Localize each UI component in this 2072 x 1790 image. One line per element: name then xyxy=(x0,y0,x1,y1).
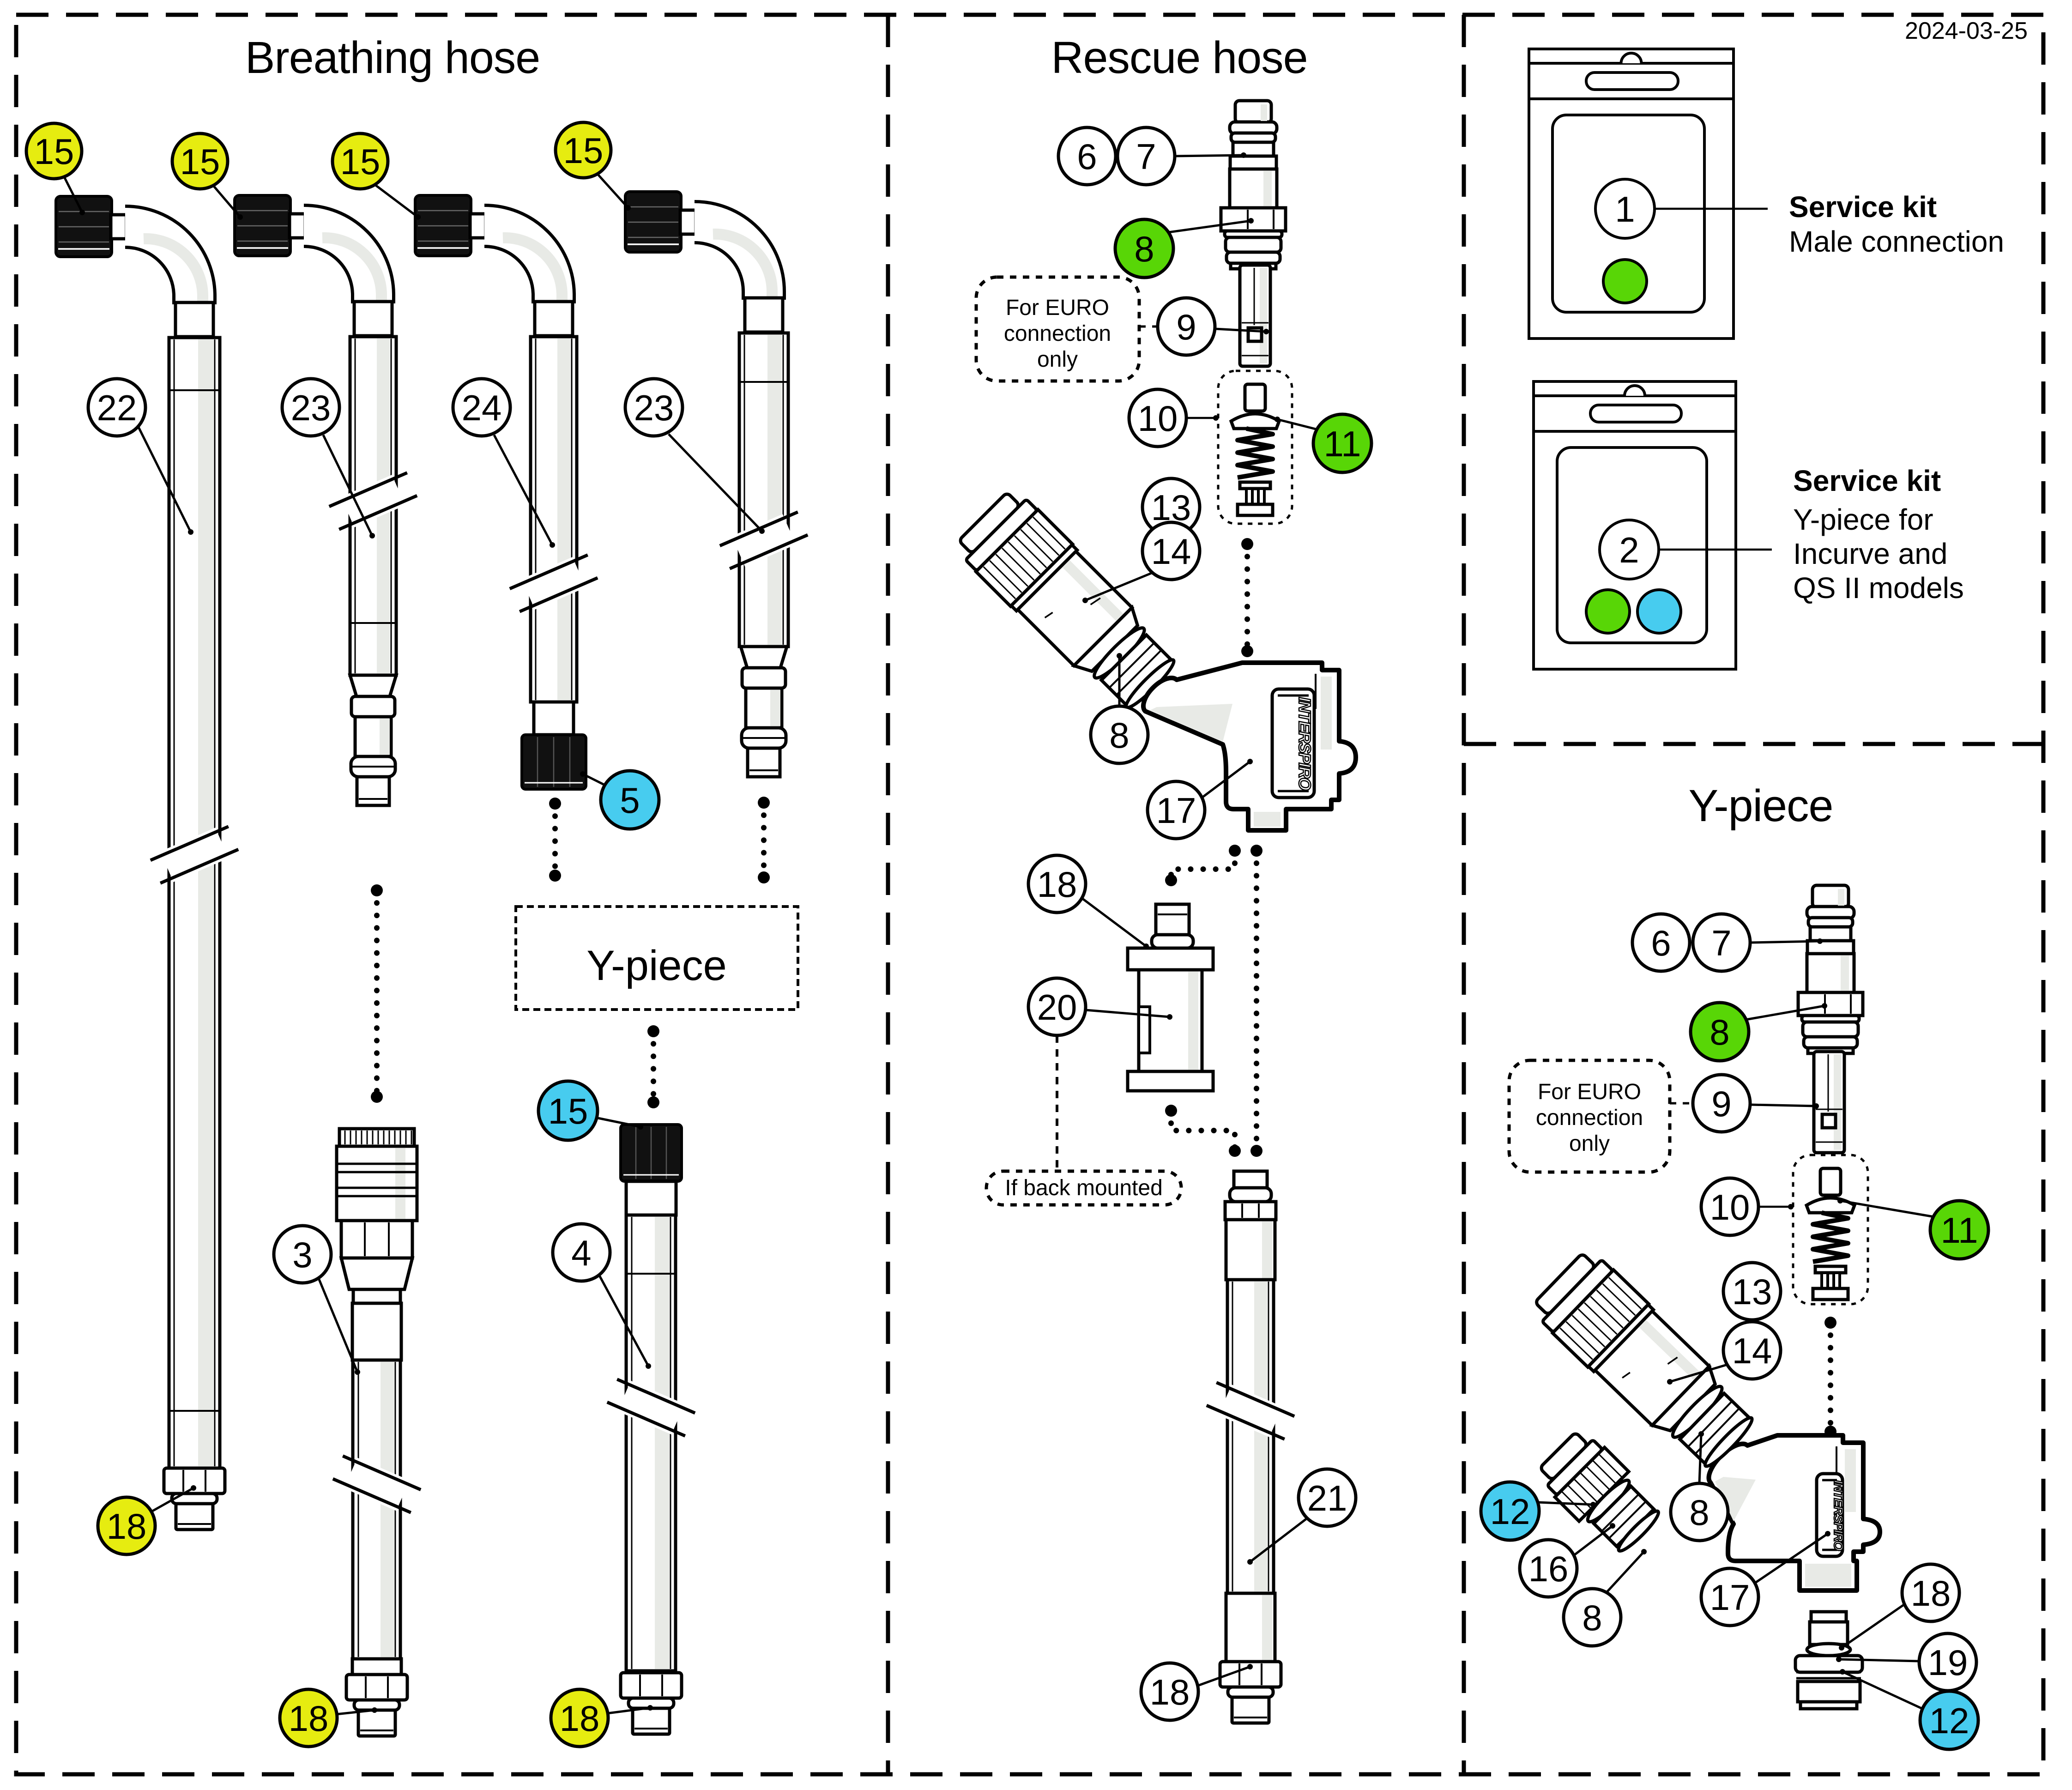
svg-text:connection: connection xyxy=(1536,1106,1643,1130)
svg-text:Service kit: Service kit xyxy=(1789,190,1937,224)
svg-text:8: 8 xyxy=(1710,1012,1729,1052)
svg-text:13: 13 xyxy=(1732,1271,1772,1312)
svg-text:INTERSPIRO: INTERSPIRO xyxy=(1295,697,1314,790)
svg-text:Breathing hose: Breathing hose xyxy=(245,32,540,83)
svg-text:6: 6 xyxy=(1077,136,1097,177)
svg-text:23: 23 xyxy=(634,387,674,428)
svg-text:19: 19 xyxy=(1928,1642,1968,1683)
svg-text:Service kit: Service kit xyxy=(1793,464,1941,497)
svg-text:18: 18 xyxy=(1037,864,1077,905)
svg-text:18: 18 xyxy=(1911,1573,1951,1614)
svg-text:18: 18 xyxy=(560,1698,600,1739)
svg-text:Male connection: Male connection xyxy=(1789,225,2004,258)
svg-text:8: 8 xyxy=(1134,229,1154,269)
svg-text:Y-piece: Y-piece xyxy=(586,942,727,989)
svg-text:15: 15 xyxy=(548,1091,588,1131)
svg-text:6: 6 xyxy=(1651,923,1671,963)
svg-text:5: 5 xyxy=(620,780,640,821)
svg-text:9: 9 xyxy=(1711,1083,1731,1124)
svg-text:For EURO: For EURO xyxy=(1006,296,1109,320)
svg-text:7: 7 xyxy=(1711,923,1731,963)
svg-text:23: 23 xyxy=(291,387,331,428)
svg-text:INTERSPIRO: INTERSPIRO xyxy=(1831,1480,1846,1551)
svg-text:18: 18 xyxy=(1150,1672,1190,1712)
svg-text:18: 18 xyxy=(289,1698,329,1739)
svg-text:21: 21 xyxy=(1307,1478,1347,1518)
svg-text:16: 16 xyxy=(1528,1548,1569,1589)
svg-text:Incurve and: Incurve and xyxy=(1793,537,1947,570)
svg-text:9: 9 xyxy=(1176,307,1196,347)
svg-text:20: 20 xyxy=(1037,987,1077,1028)
svg-text:10: 10 xyxy=(1710,1187,1750,1228)
svg-text:14: 14 xyxy=(1151,531,1191,572)
svg-text:3: 3 xyxy=(292,1234,312,1275)
svg-text:2024-03-25: 2024-03-25 xyxy=(1905,18,2028,44)
svg-text:18: 18 xyxy=(107,1506,147,1547)
svg-text:17: 17 xyxy=(1156,790,1196,831)
svg-text:QS II models: QS II models xyxy=(1793,571,1964,605)
svg-text:17: 17 xyxy=(1710,1577,1750,1618)
svg-text:8: 8 xyxy=(1582,1597,1602,1638)
svg-text:14: 14 xyxy=(1732,1330,1772,1371)
svg-text:15: 15 xyxy=(563,130,604,171)
svg-text:15: 15 xyxy=(34,131,74,172)
svg-text:connection: connection xyxy=(1004,321,1111,346)
svg-text:2: 2 xyxy=(1619,530,1639,570)
svg-text:7: 7 xyxy=(1136,136,1156,177)
svg-text:11: 11 xyxy=(1941,1210,1978,1251)
svg-text:15: 15 xyxy=(180,141,220,182)
svg-text:For EURO: For EURO xyxy=(1538,1080,1641,1104)
svg-text:12: 12 xyxy=(1929,1700,1969,1741)
svg-text:24: 24 xyxy=(462,387,502,428)
svg-text:Y-piece: Y-piece xyxy=(1689,780,1833,831)
svg-text:22: 22 xyxy=(97,387,137,428)
svg-text:only: only xyxy=(1037,347,1078,372)
svg-text:4: 4 xyxy=(571,1233,591,1273)
svg-text:If back mounted: If back mounted xyxy=(1005,1176,1163,1200)
svg-text:10: 10 xyxy=(1138,398,1178,439)
svg-text:1: 1 xyxy=(1615,189,1635,230)
svg-text:8: 8 xyxy=(1109,715,1129,756)
svg-text:15: 15 xyxy=(340,141,381,182)
svg-text:12: 12 xyxy=(1490,1491,1530,1532)
svg-text:only: only xyxy=(1569,1131,1610,1156)
svg-text:Rescue hose: Rescue hose xyxy=(1051,32,1307,83)
svg-text:11: 11 xyxy=(1324,423,1361,464)
svg-text:8: 8 xyxy=(1689,1492,1709,1533)
svg-text:Y-piece for: Y-piece for xyxy=(1793,503,1933,536)
